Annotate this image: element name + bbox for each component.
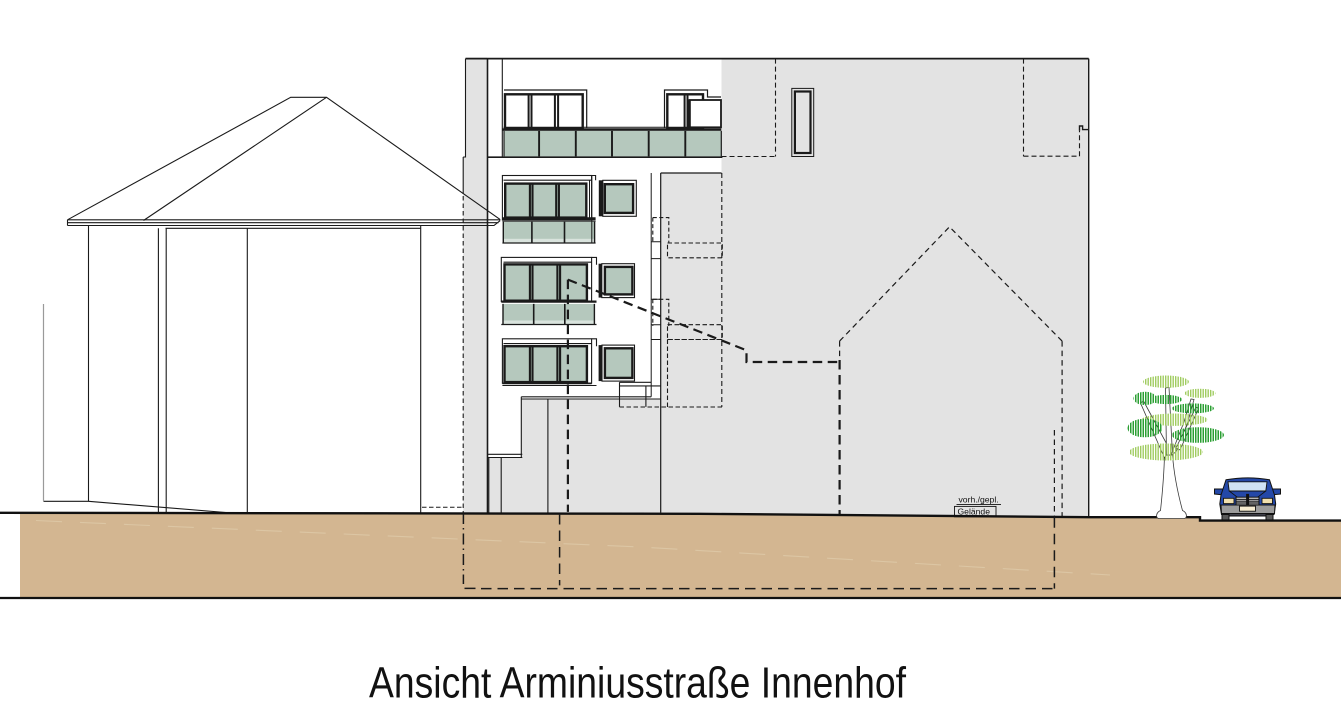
svg-text:Gelände: Gelände <box>958 507 991 517</box>
svg-text:Ansicht Arminiusstraße Innen: Ansicht Arminiusstraße Innenhof <box>369 659 907 708</box>
svg-text:vorh./gepl.: vorh./gepl. <box>959 494 999 504</box>
